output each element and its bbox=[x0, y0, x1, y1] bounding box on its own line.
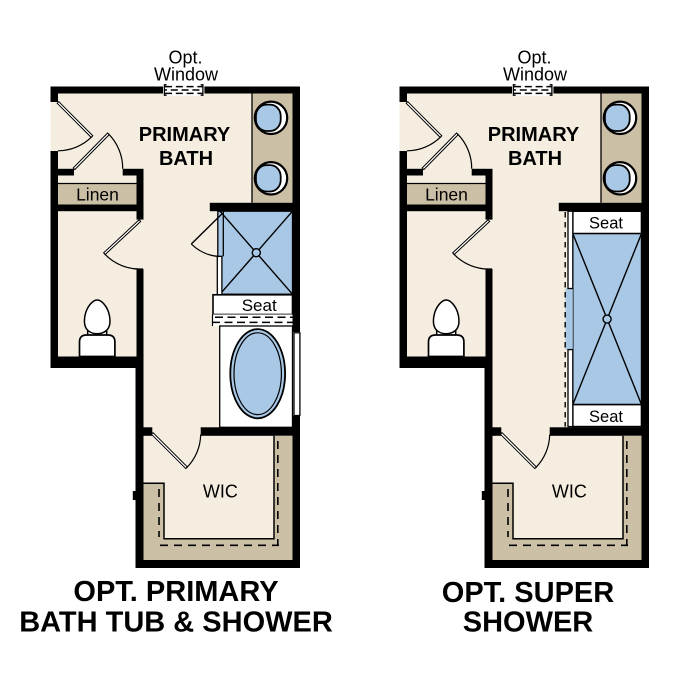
svg-text:BATH: BATH bbox=[159, 148, 213, 170]
svg-text:BATH TUB & SHOWER: BATH TUB & SHOWER bbox=[19, 606, 333, 638]
svg-text:PRIMARY: PRIMARY bbox=[139, 124, 231, 146]
svg-text:OPT. PRIMARY: OPT. PRIMARY bbox=[73, 576, 278, 608]
svg-text:Linen: Linen bbox=[76, 184, 119, 204]
svg-text:Seat: Seat bbox=[589, 408, 623, 426]
svg-text:Linen: Linen bbox=[425, 184, 468, 204]
svg-text:OPT. SUPER: OPT. SUPER bbox=[442, 577, 614, 609]
svg-text:SHOWER: SHOWER bbox=[463, 607, 594, 639]
svg-text:Seat: Seat bbox=[242, 296, 277, 315]
svg-text:Seat: Seat bbox=[589, 214, 623, 232]
svg-text:WIC: WIC bbox=[552, 481, 587, 501]
svg-text:Window: Window bbox=[503, 65, 568, 85]
svg-text:WIC: WIC bbox=[203, 481, 238, 501]
svg-text:BATH: BATH bbox=[508, 148, 562, 170]
svg-text:Window: Window bbox=[154, 65, 219, 85]
svg-text:PRIMARY: PRIMARY bbox=[488, 124, 580, 146]
